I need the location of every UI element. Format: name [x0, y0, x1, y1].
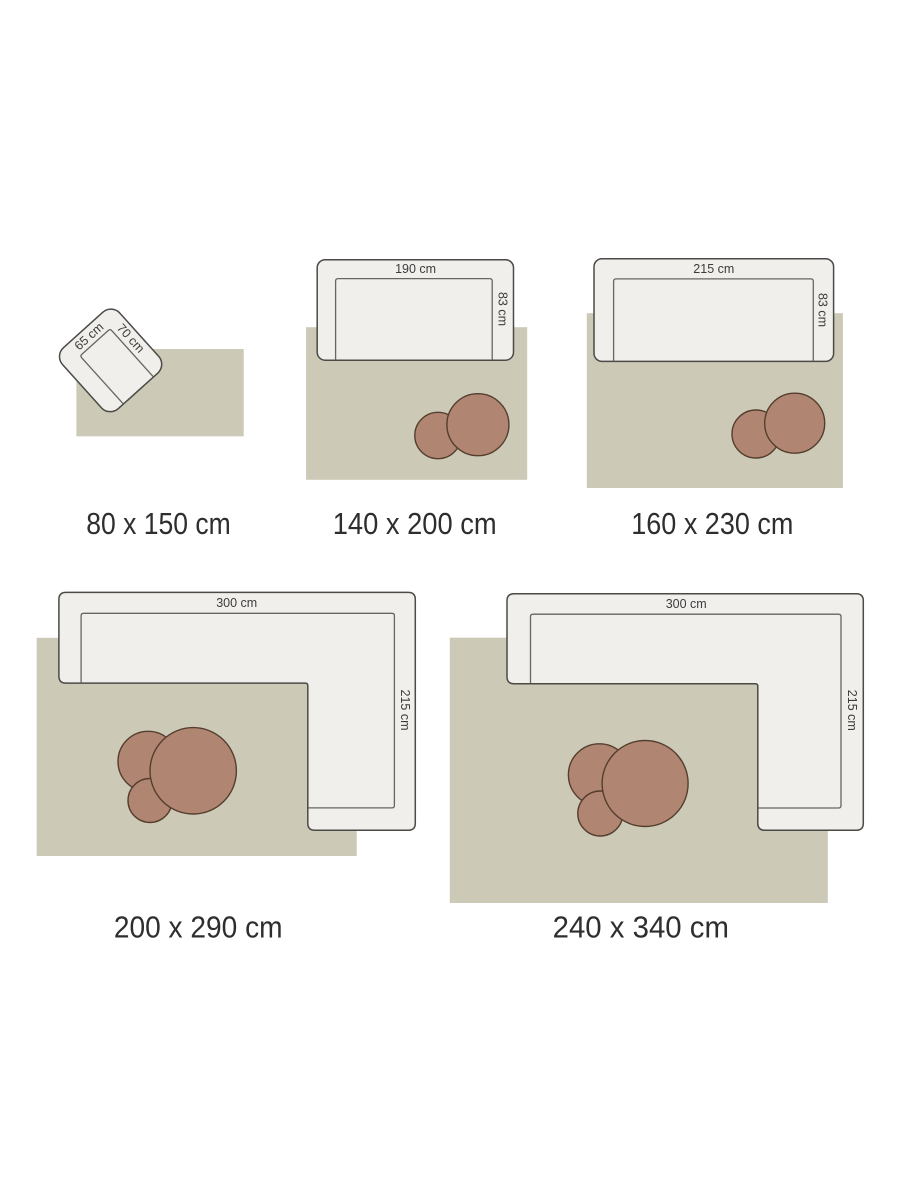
svg-text:300 cm: 300 cm — [666, 597, 707, 611]
svg-text:300 cm: 300 cm — [216, 596, 257, 610]
svg-text:200 x 290 cm: 200 x 290 cm — [114, 910, 283, 945]
svg-text:83 cm: 83 cm — [496, 292, 510, 326]
svg-text:80 x 150 cm: 80 x 150 cm — [86, 506, 231, 541]
svg-text:160 x 230 cm: 160 x 230 cm — [631, 506, 793, 541]
svg-text:83 cm: 83 cm — [815, 293, 829, 327]
svg-text:215 cm: 215 cm — [845, 690, 859, 731]
svg-text:190 cm: 190 cm — [395, 262, 436, 276]
svg-text:140 x 200 cm: 140 x 200 cm — [333, 506, 497, 541]
svg-text:215 cm: 215 cm — [693, 262, 734, 276]
svg-text:240 x 340 cm: 240 x 340 cm — [553, 910, 729, 945]
svg-text:215 cm: 215 cm — [398, 690, 412, 731]
